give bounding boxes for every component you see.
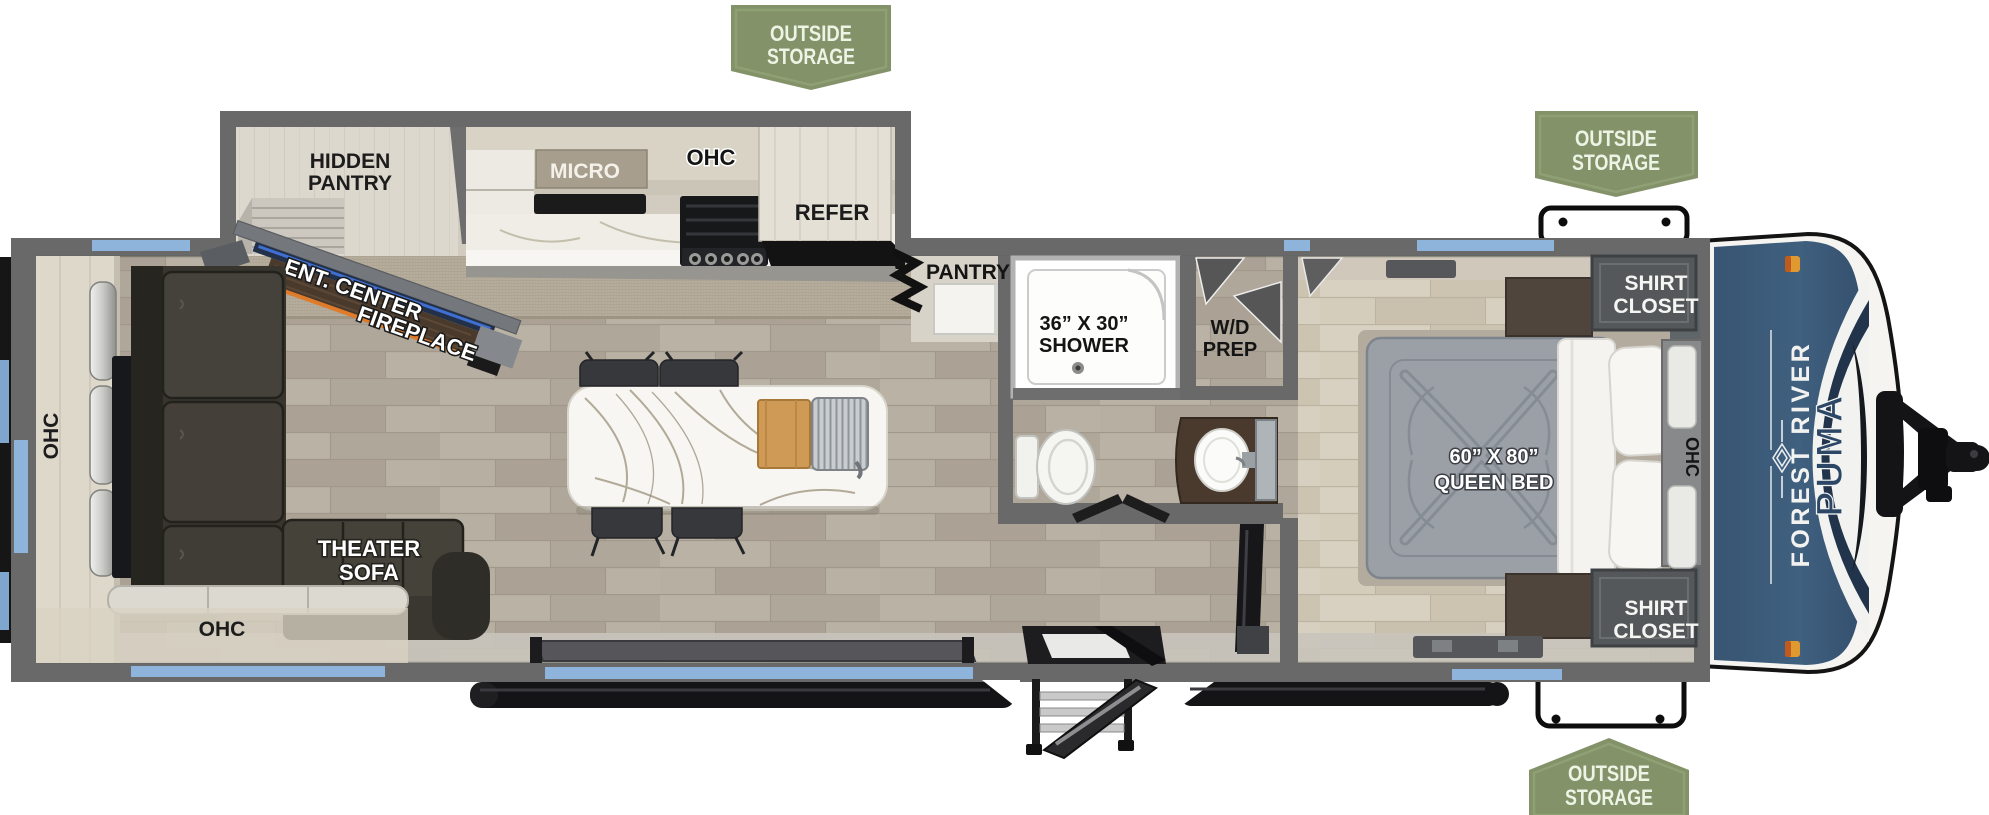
svg-text:60” X 80”: 60” X 80”	[1450, 446, 1539, 468]
svg-text:OUTSIDE: OUTSIDE	[1575, 126, 1657, 151]
svg-text:PUMA: PUMA	[1809, 392, 1850, 517]
svg-text:MICRO: MICRO	[550, 160, 620, 183]
svg-text:STORAGE: STORAGE	[767, 44, 855, 69]
svg-text:SHIRT: SHIRT	[1625, 597, 1688, 620]
svg-text:SOFA: SOFA	[339, 560, 399, 585]
svg-text:CLOSET: CLOSET	[1613, 295, 1698, 318]
svg-text:OUTSIDE: OUTSIDE	[770, 21, 852, 46]
svg-text:PANTRY: PANTRY	[926, 261, 1010, 284]
svg-text:THEATER: THEATER	[318, 536, 420, 561]
svg-text:QUEEN BED: QUEEN BED	[1435, 472, 1554, 494]
svg-text:CLOSET: CLOSET	[1613, 620, 1698, 643]
svg-text:W/D: W/D	[1211, 317, 1250, 339]
svg-text:OHC: OHC	[1682, 437, 1702, 477]
svg-text:HIDDEN: HIDDEN	[310, 150, 391, 173]
svg-text:SHIRT: SHIRT	[1625, 272, 1688, 295]
svg-text:36” X 30”: 36” X 30”	[1040, 313, 1129, 335]
svg-text:OHC: OHC	[40, 413, 63, 460]
svg-text:OHC: OHC	[687, 145, 736, 170]
svg-text:SHOWER: SHOWER	[1039, 335, 1130, 357]
svg-text:STORAGE: STORAGE	[1572, 150, 1660, 175]
svg-text:OUTSIDE: OUTSIDE	[1568, 761, 1650, 786]
svg-text:STORAGE: STORAGE	[1565, 785, 1653, 810]
svg-text:OHC: OHC	[199, 618, 246, 641]
svg-text:PREP: PREP	[1203, 339, 1257, 361]
svg-text:REFER: REFER	[795, 200, 870, 225]
svg-text:PANTRY: PANTRY	[308, 172, 392, 195]
